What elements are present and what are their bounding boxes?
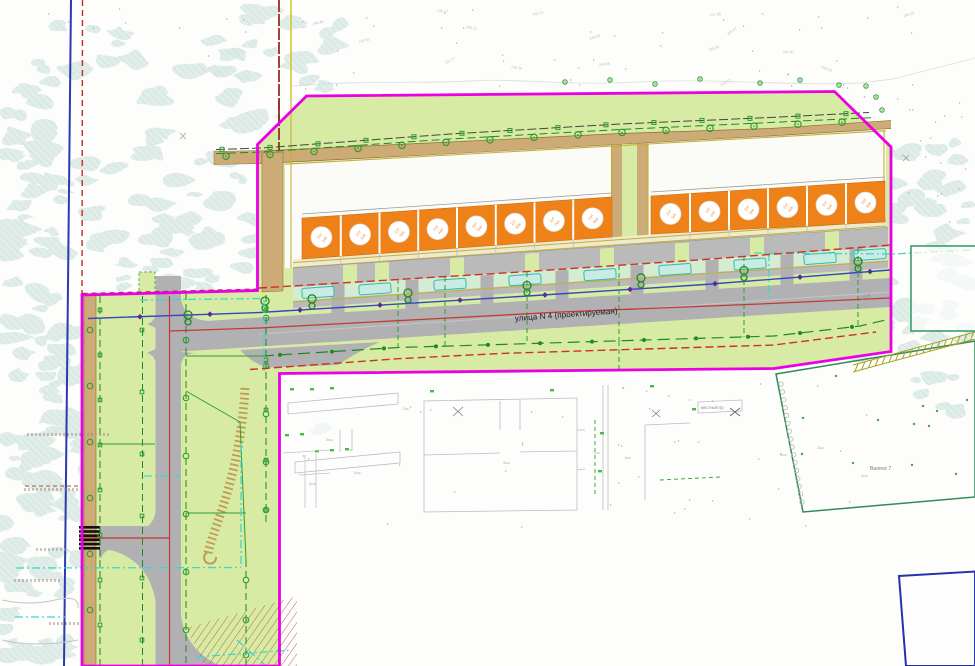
svg-text:5кж: 5кж — [326, 437, 333, 442]
svg-text:7кж: 7кж — [402, 406, 409, 411]
svg-text:Валенс 7: Валенс 7 — [870, 466, 891, 472]
svg-text:7кж: 7кж — [593, 450, 600, 455]
svg-text:5кж: 5кж — [861, 473, 868, 478]
svg-text:1кж: 1кж — [624, 455, 631, 460]
svg-text:247.96: 247.96 — [710, 12, 721, 17]
svg-text:245.17: 245.17 — [437, 9, 448, 14]
svg-text:местный пр: местный пр — [701, 405, 724, 410]
svg-text:8кж: 8кж — [309, 481, 316, 486]
svg-text:5кж: 5кж — [354, 470, 361, 475]
svg-text:3кж: 3кж — [817, 445, 824, 450]
svg-text:241.61: 241.61 — [783, 50, 794, 54]
svg-text:9кж: 9кж — [503, 460, 510, 465]
svg-text:5кж: 5кж — [780, 452, 787, 457]
